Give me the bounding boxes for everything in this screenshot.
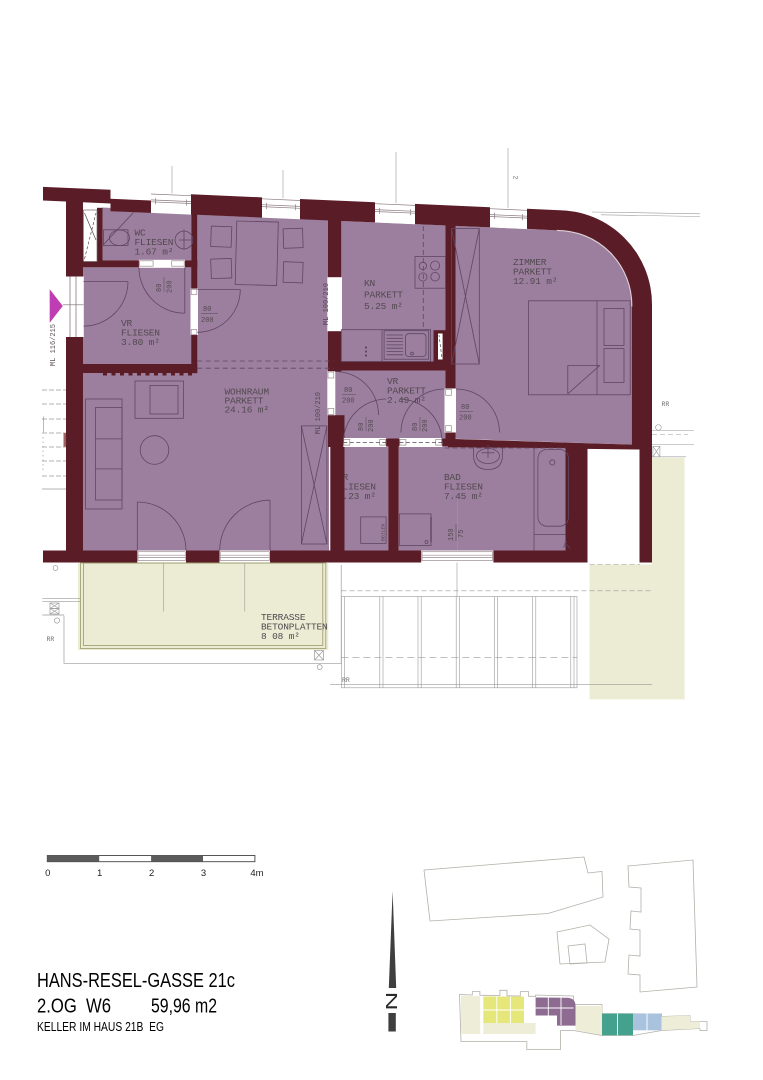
svg-text:80: 80	[461, 404, 469, 412]
svg-text:KN: KN	[364, 278, 375, 289]
svg-text:80: 80	[412, 423, 420, 431]
svg-text:ML 100/210: ML 100/210	[315, 392, 323, 434]
svg-text:3: 3	[201, 868, 206, 879]
svg-text:80: 80	[358, 423, 366, 431]
svg-text:2.49 m²: 2.49 m²	[387, 395, 426, 406]
svg-text:4m: 4m	[250, 868, 263, 879]
svg-text:150: 150	[448, 528, 456, 541]
svg-text:PARKETT: PARKETT	[364, 290, 403, 301]
svg-text:80: 80	[203, 306, 211, 314]
svg-text:200: 200	[422, 419, 430, 432]
svg-text:7.45 m²: 7.45 m²	[444, 491, 483, 502]
svg-text:RR: RR	[342, 677, 350, 684]
svg-text:RR: RR	[47, 636, 55, 643]
svg-text:200: 200	[201, 317, 214, 325]
svg-text:5.25 m²: 5.25 m²	[364, 301, 403, 312]
svg-text:1: 1	[97, 868, 102, 879]
svg-text:2: 2	[512, 176, 519, 180]
svg-text:80: 80	[156, 284, 164, 292]
svg-text:200: 200	[342, 398, 355, 406]
svg-text:12.91 m²: 12.91 m²	[513, 276, 557, 287]
svg-text:RR: RR	[662, 401, 670, 408]
svg-text:1.67 m²: 1.67 m²	[135, 247, 174, 258]
svg-text:KELLER IM HAUS 21B EG: KELLER IM HAUS 21B EG	[37, 1019, 164, 1034]
svg-text:80: 80	[344, 387, 352, 395]
svg-text:75: 75	[458, 530, 466, 538]
svg-text:ML 116/215: ML 116/215	[50, 324, 58, 366]
svg-text:HANS-RESEL-GASSE 21c: HANS-RESEL-GASSE 21c	[37, 970, 235, 992]
svg-text:200: 200	[459, 415, 472, 423]
svg-text:2.OG W6: 2.OG W6	[37, 996, 111, 1018]
svg-text:3.80 m²: 3.80 m²	[121, 337, 160, 348]
svg-text:BOILER: BOILER	[381, 524, 387, 541]
svg-text:8 08 m²: 8 08 m²	[261, 631, 300, 642]
svg-text:24.16 m²: 24.16 m²	[225, 405, 269, 416]
svg-text:2: 2	[149, 868, 154, 879]
svg-text:0: 0	[45, 868, 50, 879]
svg-text:N: N	[382, 992, 401, 1011]
svg-text:59,96 m2: 59,96 m2	[151, 996, 217, 1018]
svg-text:200: 200	[167, 280, 175, 293]
svg-text:ML 100/210: ML 100/210	[323, 283, 331, 325]
svg-text:200: 200	[368, 419, 376, 432]
